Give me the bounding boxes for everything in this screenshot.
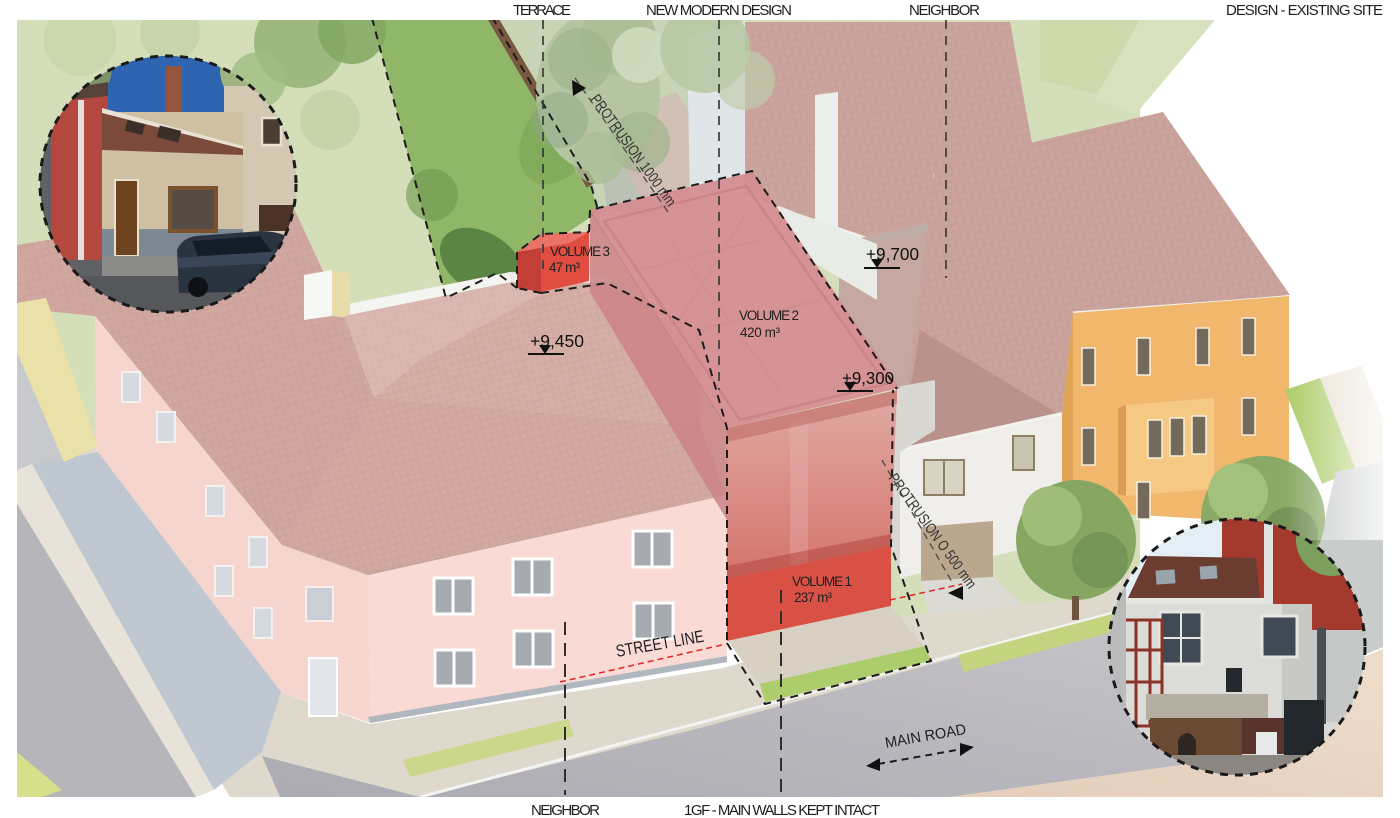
svg-text:VOLUME 2: VOLUME 2 [739,308,799,323]
svg-text:+9,700: +9,700 [866,244,919,264]
svg-text:47 m³: 47 m³ [549,260,581,275]
svg-text:TERRACE: TERRACE [513,2,571,19]
svg-text:DESIGN - EXISTING SITE: DESIGN - EXISTING SITE [1226,2,1383,19]
svg-text:420 m³: 420 m³ [740,325,781,340]
svg-text:VOLUME 3: VOLUME 3 [550,244,610,259]
svg-text:VOLUME 1: VOLUME 1 [792,574,852,589]
svg-text:237 m³: 237 m³ [794,590,833,605]
svg-text:1GF - MAIN WALLS KEPT INTACT: 1GF - MAIN WALLS KEPT INTACT [684,802,880,818]
svg-text:NEW MODERN DESIGN: NEW MODERN DESIGN [646,2,792,19]
svg-text:+9,450: +9,450 [530,331,584,351]
svg-text:+9,300: +9,300 [842,368,894,388]
svg-text:NEIGHBOR: NEIGHBOR [909,2,980,19]
svg-text:NEIGHBOR: NEIGHBOR [531,802,600,818]
